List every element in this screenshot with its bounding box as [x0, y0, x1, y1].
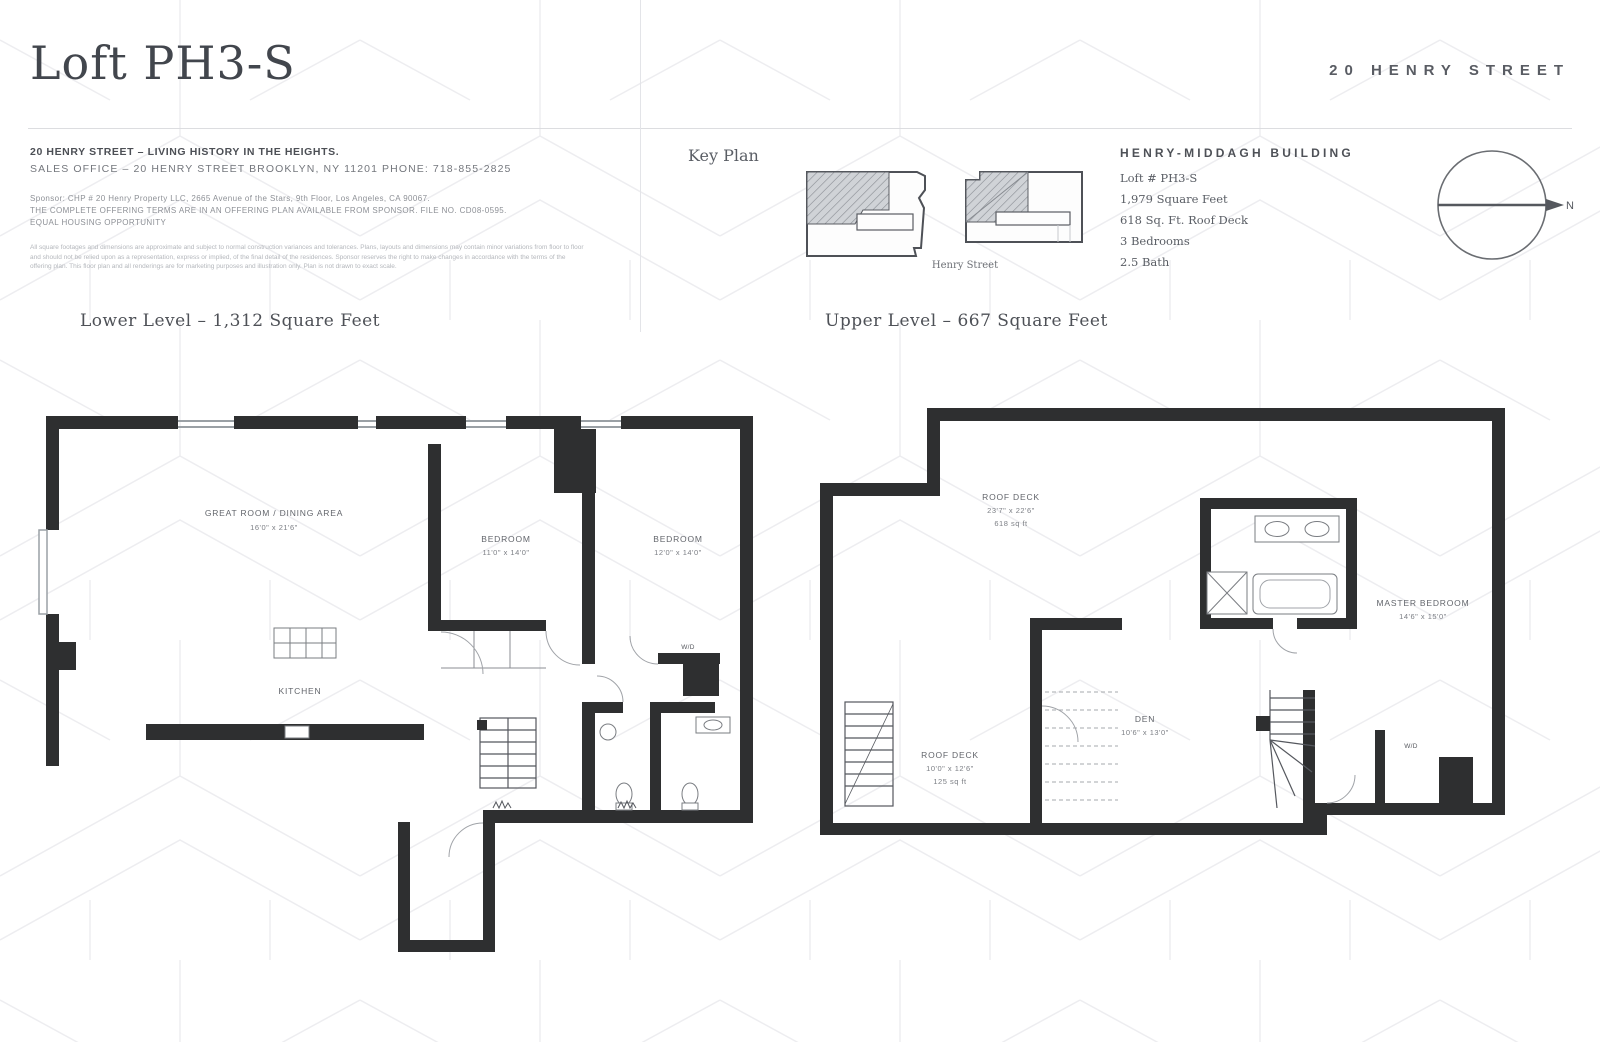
building-name-label: 20 HENRY STREET	[1190, 62, 1570, 79]
den-dims: 10'6" x 13'0"	[1121, 728, 1169, 737]
roof-deck-dims: 23'7" x 22'6"	[987, 506, 1035, 515]
setback-deck-label: ROOF DECK	[921, 750, 979, 760]
kitchen-label: KITCHEN	[279, 686, 322, 696]
setback-deck-dims: 10'0" x 12'6"	[926, 764, 974, 773]
corridor-outline	[857, 214, 913, 230]
sponsor-line: THE COMPLETE OFFERING TERMS ARE IN AN OF…	[30, 205, 590, 217]
building-info-line: 3 Bedrooms	[1120, 231, 1390, 252]
lower-floor-plan: GREAT ROOM / DINING AREA 16'0" x 21'6" K…	[38, 402, 758, 962]
lower-plan-bath-fixtures	[600, 717, 730, 810]
stair-newel-post	[477, 720, 487, 730]
building-info-block: HENRY-MIDDAGH BUILDING Loft # PH3-S 1,97…	[1120, 146, 1390, 273]
bedroom-dims: 12'0" x 14'0"	[654, 548, 702, 557]
lower-plan-closets	[441, 631, 546, 668]
den-label: DEN	[1135, 714, 1155, 724]
washer-dryer-label: W/D	[1404, 743, 1418, 750]
bedroom-label: BEDROOM	[653, 534, 703, 544]
disclaimer-line: offering plan. This floor plan and all r…	[30, 263, 397, 270]
corridor-outline	[996, 212, 1070, 225]
building-info-line: 618 Sq. Ft. Roof Deck	[1120, 210, 1390, 231]
bedroom-label: BEDROOM	[481, 534, 531, 544]
marketing-headline: 20 HENRY STREET – LIVING HISTORY IN THE …	[30, 146, 590, 158]
henry-street-label: Henry Street	[905, 260, 1025, 271]
page-title: Loft PH3-S	[30, 36, 296, 90]
lower-plan-walls	[46, 416, 753, 952]
setback-deck-area: 125 sq ft	[933, 777, 967, 786]
kitchen-island	[274, 628, 336, 738]
key-plan-label: Key Plan	[688, 146, 759, 165]
north-arrow-icon: N	[1420, 148, 1580, 263]
sponsor-line: EQUAL HOUSING OPPORTUNITY	[30, 217, 590, 229]
background-grid-line	[640, 0, 641, 332]
roof-deck-label: ROOF DECK	[982, 492, 1040, 502]
washer-dryer-label: W/D	[681, 644, 695, 651]
disclaimer-line: All square footages and dimensions are a…	[30, 244, 584, 251]
compass-arrowhead	[1546, 199, 1564, 211]
upper-plan-walls	[820, 408, 1505, 835]
great-room-label: GREAT ROOM / DINING AREA	[205, 508, 343, 518]
key-plan-diagram-lower	[797, 158, 947, 262]
upper-floor-plan: ROOF DECK 23'7" x 22'6" 618 sq ft ROOF D…	[815, 400, 1515, 850]
sales-office-line: SALES OFFICE – 20 HENRY STREET BROOKLYN,…	[30, 163, 590, 175]
roof-deck-area: 618 sq ft	[994, 519, 1028, 528]
lower-level-heading: Lower Level – 1,312 Square Feet	[80, 311, 380, 331]
building-info-line: 1,979 Square Feet	[1120, 189, 1390, 210]
master-bedroom-label: MASTER BEDROOM	[1377, 598, 1470, 608]
disclaimer-line: and should not be relied upon as a repre…	[30, 254, 565, 261]
deck-stair	[845, 702, 893, 806]
marketing-block: 20 HENRY STREET – LIVING HISTORY IN THE …	[30, 146, 590, 272]
building-info-line: 2.5 Bath	[1120, 252, 1390, 273]
left-window	[39, 530, 47, 614]
planting-marks	[493, 801, 636, 808]
building-info-line: Loft # PH3-S	[1120, 168, 1390, 189]
north-label: N	[1566, 200, 1574, 212]
upper-level-heading: Upper Level – 667 Square Feet	[825, 311, 1108, 331]
upper-bath-fixtures	[1207, 516, 1339, 614]
building-info-name: HENRY-MIDDAGH BUILDING	[1120, 146, 1390, 160]
key-plan-diagram-upper	[958, 164, 1093, 256]
disclaimer-text: All square footages and dimensions are a…	[30, 243, 590, 272]
stair-newel-post	[1256, 716, 1270, 731]
header-divider	[28, 128, 1572, 129]
sponsor-line: Sponsor: CHP # 20 Henry Property LLC, 26…	[30, 193, 590, 205]
great-room-dims: 16'0" x 21'6"	[250, 523, 298, 532]
lower-plan-stair	[480, 718, 536, 788]
kitchen-sink	[285, 726, 309, 738]
master-bedroom-dims: 14'6" x 15'0"	[1399, 612, 1447, 621]
bedroom-dims: 11'0" x 14'0"	[482, 548, 529, 557]
